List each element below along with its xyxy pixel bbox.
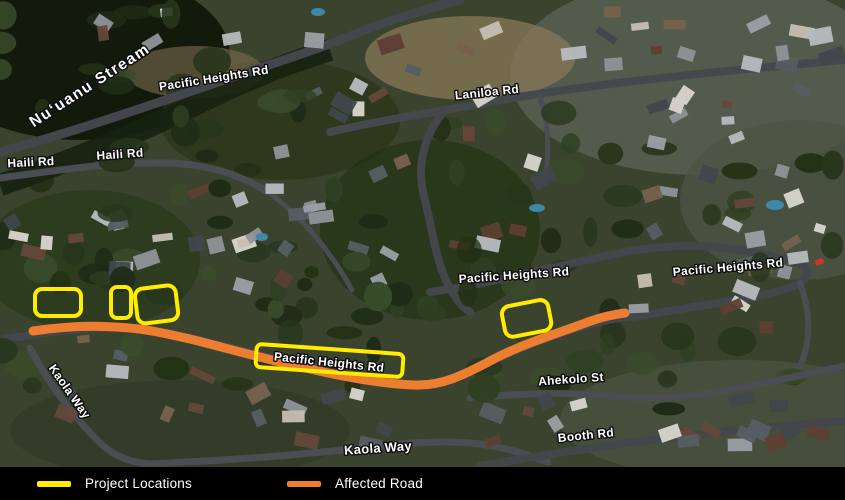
affected-road-swatch: [287, 481, 321, 487]
project-locations-swatch: [37, 481, 71, 487]
legend-label-affected-road: Affected Road: [335, 476, 423, 491]
legend-label-project-locations: Project Locations: [85, 476, 192, 491]
legend: Project Locations Affected Road: [0, 467, 845, 500]
legend-item-project-locations: Project Locations: [37, 467, 192, 500]
map-figure: Nuʻuanu Stream Pacific Heights Rd Haili …: [0, 0, 845, 500]
label-haili-rd-west: Haili Rd: [7, 154, 55, 170]
legend-item-affected-road: Affected Road: [287, 467, 423, 500]
satellite-map: Nuʻuanu Stream Pacific Heights Rd Haili …: [0, 0, 845, 468]
